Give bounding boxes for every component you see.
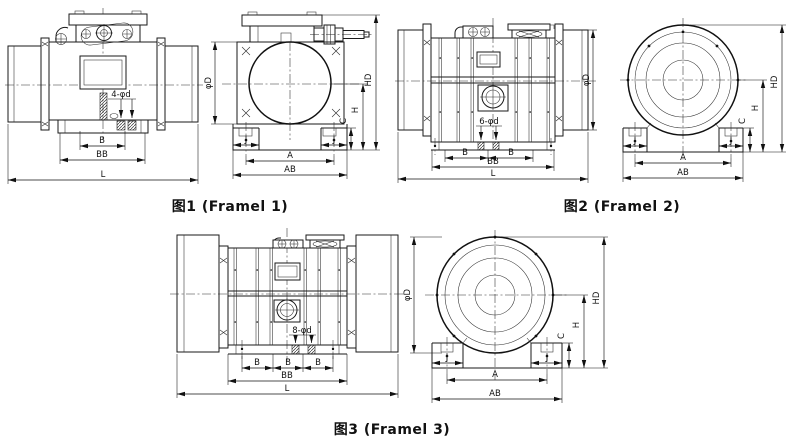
dim-label-l: L <box>491 169 496 179</box>
top-bracket <box>463 26 493 38</box>
figure2-front-view-drawing: J J A AB C H <box>600 0 790 192</box>
dimension-B: B <box>80 131 125 150</box>
dim-label-b1: B <box>462 148 468 158</box>
keyway-section <box>100 93 107 120</box>
bearing-boss <box>478 84 508 111</box>
dimension-J-left: J <box>432 353 463 363</box>
figure3-side-view-drawing: 8-φd B B B BB <box>170 222 405 418</box>
cable-gland <box>310 25 374 44</box>
dimension-C: C <box>738 118 754 152</box>
dim-label-j-left: J <box>633 136 637 146</box>
terminal-box <box>56 11 148 46</box>
mounting-feet <box>431 138 555 155</box>
dim-label-phid: φD <box>582 73 592 86</box>
dimension-J-left: J <box>623 136 647 146</box>
dim-label-bb: BB <box>96 150 108 160</box>
dim-label-b3: B <box>315 358 321 368</box>
dimension-B3: B <box>303 354 333 372</box>
dim-label-c: C <box>339 118 349 124</box>
dim-label-phid: φD <box>204 76 214 89</box>
dim-label-l: L <box>101 170 106 180</box>
dim-label-j-right: J <box>332 135 336 145</box>
figure3-front-view-drawing: φD <box>400 222 635 418</box>
dimension-phiD: φD <box>582 30 597 130</box>
dim-label-j-right: J <box>729 136 733 146</box>
dimension-H: H <box>554 295 588 368</box>
dimension-B2: B <box>273 354 303 372</box>
dim-label-b1: B <box>254 358 260 368</box>
figure1-front-view-drawing: φD <box>202 0 392 192</box>
dim-label-b2: B <box>285 358 291 368</box>
dim-label-a: A <box>287 151 293 161</box>
figure2-caption: 图2 (Framel 2) <box>532 196 712 216</box>
dim-label-phid: φD <box>403 288 413 301</box>
left-weight-cover <box>177 235 228 352</box>
dim-label-holes: 8-φd <box>292 326 311 336</box>
dimension-H: H <box>331 84 368 150</box>
right-weight-cover <box>157 38 198 130</box>
terminal-box <box>508 24 554 38</box>
figure3-caption: 图3 (Framel 3) <box>302 419 482 439</box>
dim-label-j-right: J <box>545 353 549 363</box>
left-weight-cover <box>398 24 431 136</box>
top-bracket <box>273 240 303 248</box>
figure1-caption: 图1 (Framel 1) <box>140 196 320 216</box>
dim-label-h: H <box>351 107 361 113</box>
vibration-motor-dimension-drawings: 4-φd B BB L φD <box>0 0 790 448</box>
dim-label-h: H <box>751 105 761 111</box>
inspection-window <box>477 52 500 67</box>
dim-label-j-left: J <box>244 135 248 145</box>
dimension-A: A <box>635 153 731 167</box>
terminal-box <box>242 12 322 42</box>
dimension-J-right: J <box>321 135 347 145</box>
dimension-BB: BB <box>432 150 554 171</box>
dim-label-holes: 6-φd <box>479 117 498 127</box>
dim-label-l: L <box>285 384 290 394</box>
dim-label-j-left: J <box>445 353 449 363</box>
dim-label-hd: HD <box>770 75 780 88</box>
dim-label-b: B <box>99 136 105 146</box>
inspection-window <box>275 263 300 280</box>
figure2-side-view-drawing: 6-φd B B BB L <box>395 0 600 192</box>
dim-label-holes: 4-φd <box>111 90 130 100</box>
dimension-J-left: J <box>233 135 259 145</box>
dimension-J-right: J <box>719 136 743 146</box>
dim-label-bb: BB <box>487 157 499 167</box>
dim-label-h: H <box>572 322 582 328</box>
holes-callout: 6-φd <box>476 117 502 140</box>
stator-frame <box>237 33 344 124</box>
right-weight-cover <box>347 235 398 352</box>
dim-label-hd: HD <box>364 73 374 86</box>
dimension-A: A <box>246 151 334 165</box>
holes-callout: 8-φd <box>289 326 316 343</box>
mounting-feet <box>228 340 347 359</box>
figure1-side-view-drawing: 4-φd B BB L <box>5 0 205 192</box>
dim-label-c: C <box>738 118 748 124</box>
dim-label-a: A <box>492 370 498 380</box>
dim-label-hd: HD <box>592 291 602 304</box>
dim-label-ab: AB <box>284 165 296 175</box>
dimension-B1: B <box>242 354 273 372</box>
terminal-box <box>306 235 344 248</box>
dim-label-bb: BB <box>281 371 293 381</box>
inspection-window <box>80 56 126 89</box>
dim-label-ab: AB <box>677 168 689 178</box>
dim-label-ab: AB <box>489 389 501 399</box>
dim-label-c: C <box>557 333 567 339</box>
bearing-boss <box>274 298 300 322</box>
dim-label-a: A <box>680 153 686 163</box>
dimension-H: H <box>740 80 767 152</box>
dimension-J-right: J <box>531 353 562 363</box>
left-weight-cover <box>8 38 49 130</box>
dimension-A: A <box>447 370 547 384</box>
mounting-feet <box>432 337 562 374</box>
dim-label-b2: B <box>508 148 514 158</box>
